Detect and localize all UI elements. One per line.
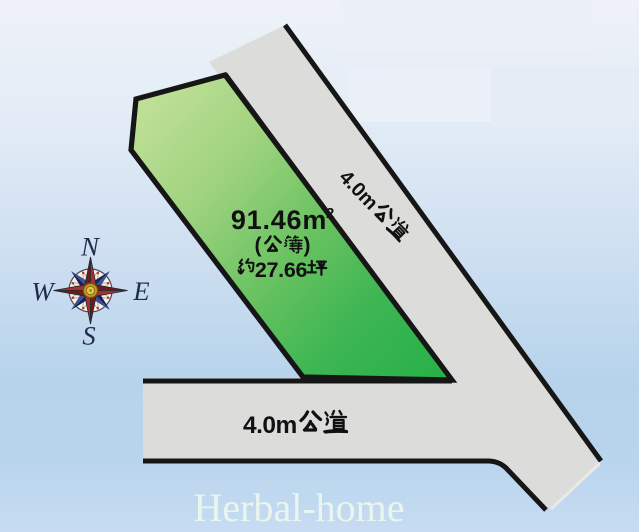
svg-text:91.46m: 91.46m: [231, 205, 327, 235]
svg-text:W: W: [31, 277, 56, 307]
svg-text:S: S: [82, 321, 95, 351]
svg-text:N: N: [80, 232, 100, 262]
svg-text:2: 2: [326, 205, 334, 222]
svg-text:(: (: [255, 234, 262, 257]
svg-text:4.0m: 4.0m: [243, 412, 297, 439]
svg-text:Herbal-home: Herbal-home: [193, 485, 404, 530]
svg-text:E: E: [132, 276, 149, 306]
svg-text:27.66: 27.66: [255, 258, 308, 282]
svg-text:): ): [304, 234, 311, 257]
